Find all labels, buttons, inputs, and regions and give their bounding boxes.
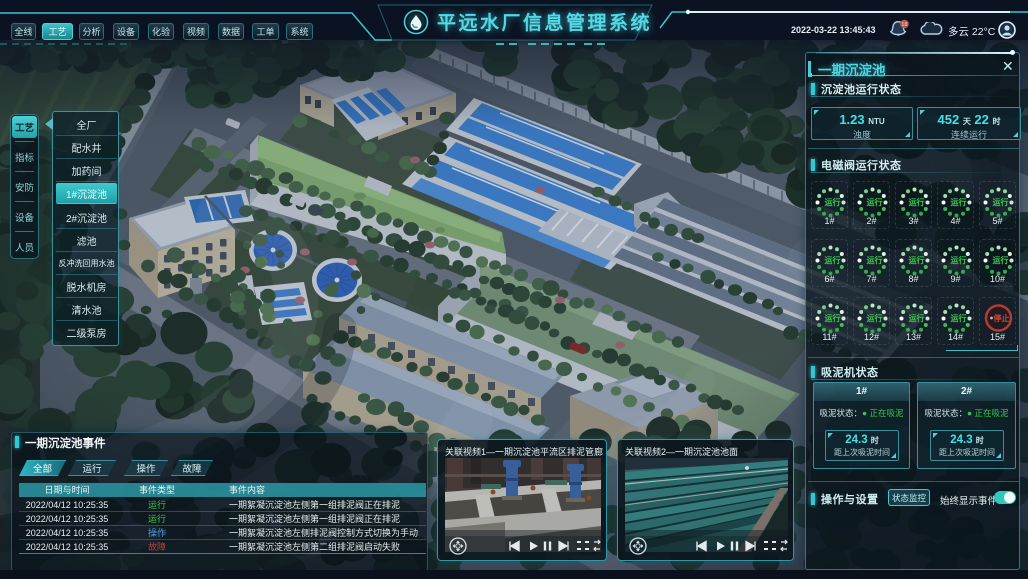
- svg-text:运行: 运行: [909, 255, 925, 265]
- svg-text:停止: 停止: [994, 313, 1010, 323]
- svg-text:运行: 运行: [825, 313, 841, 323]
- svg-text:18: 18: [901, 22, 907, 28]
- svg-text:运行: 运行: [825, 197, 841, 207]
- svg-text:运行: 运行: [867, 197, 883, 207]
- svg-text:运行: 运行: [825, 255, 841, 265]
- svg-text:运行: 运行: [867, 255, 883, 265]
- svg-text:运行: 运行: [951, 255, 967, 265]
- svg-text:运行: 运行: [993, 197, 1009, 207]
- svg-text:运行: 运行: [867, 313, 883, 323]
- svg-text:运行: 运行: [951, 197, 967, 207]
- svg-text:运行: 运行: [909, 313, 925, 323]
- svg-text:运行: 运行: [993, 255, 1009, 265]
- svg-text:运行: 运行: [951, 313, 967, 323]
- svg-text:运行: 运行: [909, 197, 925, 207]
